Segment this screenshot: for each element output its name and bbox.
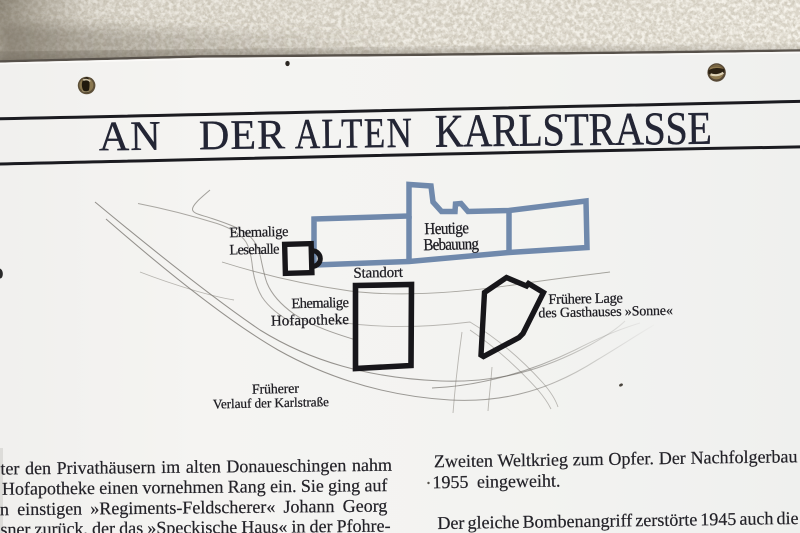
svg-text:AN DER: AN DER (99, 112, 287, 160)
svg-text:Lesehalle: Lesehalle (229, 242, 279, 259)
svg-text:KARLSTRASSE: KARLSTRASSE (435, 103, 713, 158)
svg-text:Ehemalige: Ehemalige (291, 295, 349, 312)
svg-text:Hofapotheke: Hofapotheke (271, 312, 350, 330)
svg-text:Verlauf der Karlstraße: Verlauf der Karlstraße (213, 394, 329, 411)
svg-text:des Gasthauses »Sonne«: des Gasthauses »Sonne« (538, 304, 673, 322)
svg-text:Bebauung: Bebauung (423, 235, 479, 254)
svg-text:sner zurück, der das »Speckisc: sner zurück, der das »Speckische Haus« i… (0, 516, 390, 533)
svg-text:ALTEN: ALTEN (295, 110, 413, 158)
svg-text:Ehemalige: Ehemalige (229, 224, 288, 241)
svg-text:1955 eingeweiht.: 1955 eingeweiht. (432, 471, 560, 493)
svg-text:Standort: Standort (353, 265, 404, 282)
